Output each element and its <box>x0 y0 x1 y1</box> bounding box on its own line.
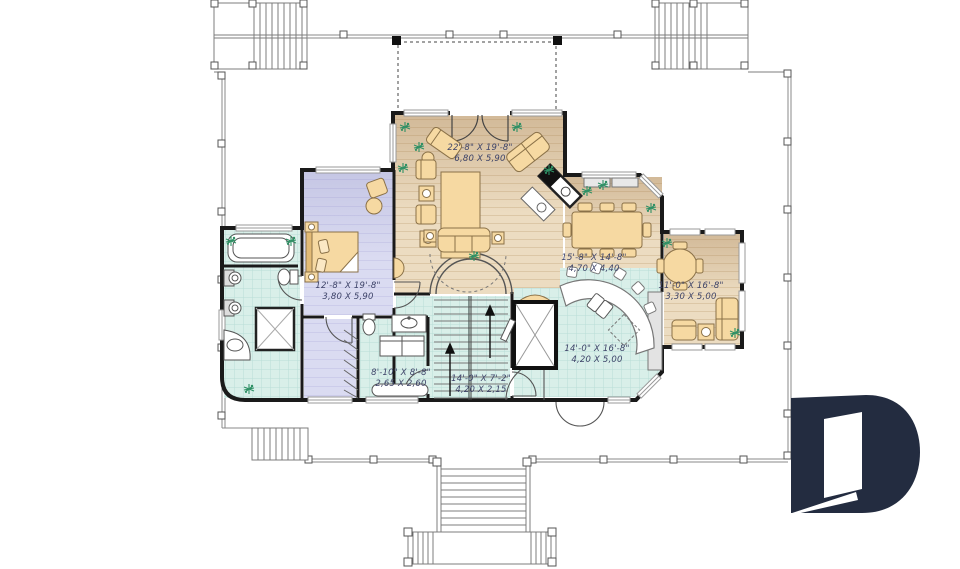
living-room-imperial: 22'-8" X 19'-8" <box>415 143 545 154</box>
kitchen-imperial: 14'-0" X 16'-8" <box>532 344 662 355</box>
breakfast-nook-imperial: 11'-0" X 16'-8" <box>626 281 756 292</box>
hall-stairs-label: 14'-0" X 7'-2" 4,20 X 2,15 <box>416 374 546 397</box>
kitchen-label: 14'-0" X 16'-8" 4,20 X 5,00 <box>532 344 662 367</box>
dining-room-label: 15'-8" X 14'-8" 4,70 X 4,40 <box>529 253 659 276</box>
floor-plan-drawing <box>0 0 960 569</box>
logo-d-counter <box>824 412 862 498</box>
side-steps-bottom-left <box>252 428 308 460</box>
breakfast-nook-label: 11'-0" X 16'-8" 3,30 X 5,00 <box>626 281 756 304</box>
living-room-label: 22'-8" X 19'-8" 6,80 X 5,90 <box>415 143 545 166</box>
upper-deck-outline <box>392 36 562 115</box>
master-bedroom-imperial: 12'-8" X 19'-8" <box>283 281 413 292</box>
kitchen-metric: 4,20 X 5,00 <box>532 355 662 366</box>
drummond-d-logo <box>786 395 920 515</box>
hall-stairs-metric: 4,20 X 2,15 <box>416 385 546 396</box>
breakfast-nook-metric: 3,30 X 5,00 <box>626 292 756 303</box>
dining-room-imperial: 15'-8" X 14'-8" <box>529 253 659 264</box>
hall-stairs-imperial: 14'-0" X 7'-2" <box>416 374 546 385</box>
deck-stairs-top-right <box>652 0 788 72</box>
front-steps <box>404 458 556 566</box>
living-room-metric: 6,80 X 5,90 <box>415 154 545 165</box>
dining-room-metric: 4,70 X 4,40 <box>529 264 659 275</box>
floor-plan-page: 22'-8" X 19'-8" 6,80 X 5,90 15'-8" X 14'… <box>0 0 960 569</box>
deck-stairs-top-left <box>211 0 307 72</box>
master-bedroom-metric: 3,80 X 5,90 <box>283 292 413 303</box>
master-bedroom-label: 12'-8" X 19'-8" 3,80 X 5,90 <box>283 281 413 304</box>
